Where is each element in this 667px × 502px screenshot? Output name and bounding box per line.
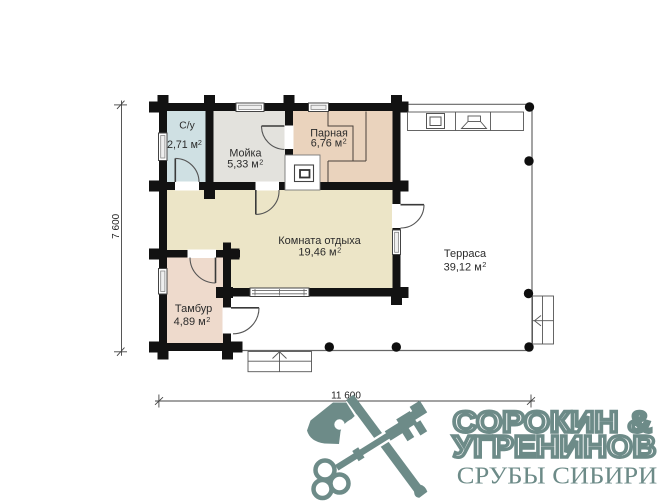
svg-text:Тамбур: Тамбур <box>175 303 212 315</box>
svg-text:5,33 м2: 5,33 м2 <box>227 157 263 170</box>
svg-text:39,12 м2: 39,12 м2 <box>444 260 487 273</box>
svg-text:Комната отдыха: Комната отдыха <box>278 235 361 247</box>
svg-text:УГРЕНИНОВ: УГРЕНИНОВ <box>453 430 657 465</box>
svg-text:2,71 м2: 2,71 м2 <box>167 138 202 151</box>
svg-text:Терраса: Терраса <box>444 248 487 260</box>
svg-text:19,46 м2: 19,46 м2 <box>298 246 341 259</box>
svg-text:СРУБЫ СИБИРИ: СРУБЫ СИБИРИ <box>457 463 658 490</box>
svg-text:6,76 м2: 6,76 м2 <box>311 136 347 149</box>
svg-text:7 600: 7 600 <box>111 213 122 238</box>
svg-text:С/у: С/у <box>179 120 195 131</box>
svg-text:4,89 м2: 4,89 м2 <box>174 315 211 328</box>
